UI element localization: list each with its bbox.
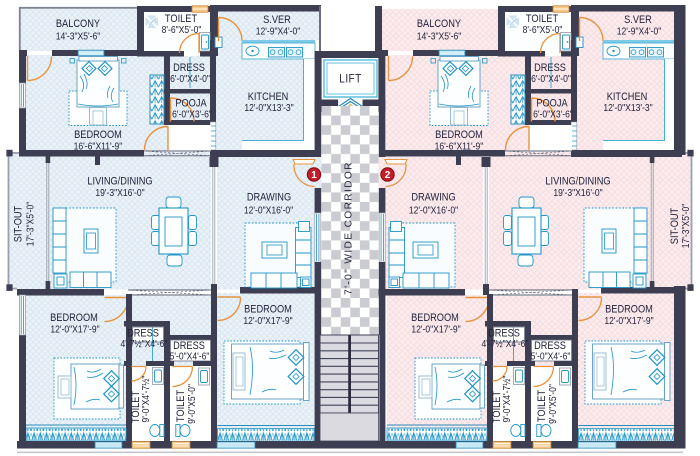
svg-text:12'-0"X13'-3": 12'-0"X13'-3"	[244, 103, 294, 114]
svg-text:SIT-OUT: SIT-OUT	[669, 208, 681, 245]
svg-text:1: 1	[311, 170, 317, 181]
svg-text:8'-6"X5'-0": 8'-6"X5'-0"	[162, 25, 202, 36]
svg-text:6'-0"X3'-6": 6'-0"X3'-6"	[533, 110, 573, 121]
svg-text:LIVING/DINING: LIVING/DINING	[545, 176, 610, 188]
svg-text:DRESS: DRESS	[488, 328, 520, 340]
svg-text:BEDROOM: BEDROOM	[244, 304, 292, 316]
svg-text:S.VER: S.VER	[624, 14, 652, 26]
svg-text:12'-0"X13'-3": 12'-0"X13'-3"	[603, 103, 653, 114]
svg-text:12'-9"X4'-0": 12'-9"X4'-0"	[256, 27, 301, 38]
svg-text:9'-0"X5'-0": 9'-0"X5'-0"	[187, 384, 198, 424]
svg-text:S.VER: S.VER	[263, 14, 291, 26]
svg-text:5'-0"X4'-6": 5'-0"X4'-6"	[531, 352, 571, 363]
svg-text:12'-0"X17'-9": 12'-0"X17'-9"	[50, 325, 100, 336]
svg-text:BEDROOM: BEDROOM	[50, 312, 98, 324]
svg-text:12'-9"X4'-0": 12'-9"X4'-0"	[617, 27, 662, 38]
svg-text:9'-0"X4'-7½": 9'-0"X4'-7½"	[141, 375, 152, 422]
svg-text:BEDROOM: BEDROOM	[74, 129, 122, 141]
svg-text:BALCONY: BALCONY	[417, 18, 462, 30]
svg-text:DRESS: DRESS	[534, 62, 566, 74]
svg-text:12'-0"X17'-9": 12'-0"X17'-9"	[243, 316, 293, 327]
svg-text:4'-7½"X4'-6": 4'-7½"X4'-6"	[482, 339, 529, 350]
svg-text:16'-6"X11'-9": 16'-6"X11'-9"	[435, 142, 484, 153]
svg-text:BALCONY: BALCONY	[56, 18, 101, 30]
svg-text:DRESS: DRESS	[173, 62, 205, 74]
svg-text:LIVING/DINING: LIVING/DINING	[87, 176, 152, 188]
svg-text:2: 2	[385, 170, 391, 181]
svg-text:LIFT: LIFT	[339, 72, 362, 86]
svg-text:DRESS: DRESS	[173, 340, 205, 352]
svg-text:TOILET: TOILET	[165, 13, 197, 25]
svg-text:TOILET: TOILET	[175, 390, 187, 422]
svg-text:TOILET: TOILET	[526, 13, 558, 25]
svg-text:4'-7½"X4'-6": 4'-7½"X4'-6"	[121, 339, 168, 350]
svg-text:BEDROOM: BEDROOM	[411, 312, 459, 324]
svg-text:9'-0"X4'-7½": 9'-0"X4'-7½"	[502, 375, 513, 422]
svg-text:BEDROOM: BEDROOM	[435, 129, 483, 141]
svg-text:6'-0"X4'-0": 6'-0"X4'-0"	[170, 74, 210, 85]
svg-text:DRAWING: DRAWING	[411, 192, 455, 204]
svg-text:14'-3"X5'-6": 14'-3"X5'-6"	[56, 32, 101, 43]
svg-text:7'-0" WIDE CORRIDOR: 7'-0" WIDE CORRIDOR	[343, 161, 355, 295]
svg-text:8'-6"X5'-0": 8'-6"X5'-0"	[523, 25, 563, 36]
svg-text:TOILET: TOILET	[536, 390, 548, 422]
svg-text:17'-3"X5'-0": 17'-3"X5'-0"	[26, 201, 37, 246]
svg-text:6'-0"X3'-6": 6'-0"X3'-6"	[172, 110, 212, 121]
svg-text:12'-0"X17'-9": 12'-0"X17'-9"	[604, 316, 654, 327]
svg-text:6'-0"X4'-0": 6'-0"X4'-0"	[531, 74, 571, 85]
svg-text:9'-0"X5'-0": 9'-0"X5'-0"	[548, 384, 559, 424]
svg-text:16'-6"X11'-9": 16'-6"X11'-9"	[74, 142, 123, 153]
svg-text:DRESS: DRESS	[534, 340, 566, 352]
svg-text:POOJA: POOJA	[175, 98, 207, 110]
svg-text:SIT-OUT: SIT-OUT	[13, 206, 25, 243]
svg-text:19'-3"X16'-0": 19'-3"X16'-0"	[95, 188, 145, 199]
svg-text:12'-0"X17'-9": 12'-0"X17'-9"	[411, 325, 461, 336]
svg-text:POOJA: POOJA	[536, 98, 568, 110]
svg-text:KITCHEN: KITCHEN	[607, 91, 648, 103]
svg-text:DRESS: DRESS	[127, 328, 159, 340]
svg-text:12'-0"X16'-0": 12'-0"X16'-0"	[244, 206, 294, 217]
svg-text:DRAWING: DRAWING	[247, 192, 291, 204]
svg-text:12'-0"X16'-0": 12'-0"X16'-0"	[409, 206, 459, 217]
svg-text:5'-0"X4'-6": 5'-0"X4'-6"	[170, 352, 210, 363]
svg-text:KITCHEN: KITCHEN	[248, 91, 289, 103]
svg-text:17'-3"X5'-0": 17'-3"X5'-0"	[681, 203, 692, 248]
svg-text:14'-3"X5'-6": 14'-3"X5'-6"	[417, 32, 462, 43]
svg-text:19'-3"X16'-0": 19'-3"X16'-0"	[553, 188, 603, 199]
svg-text:BEDROOM: BEDROOM	[605, 304, 653, 316]
